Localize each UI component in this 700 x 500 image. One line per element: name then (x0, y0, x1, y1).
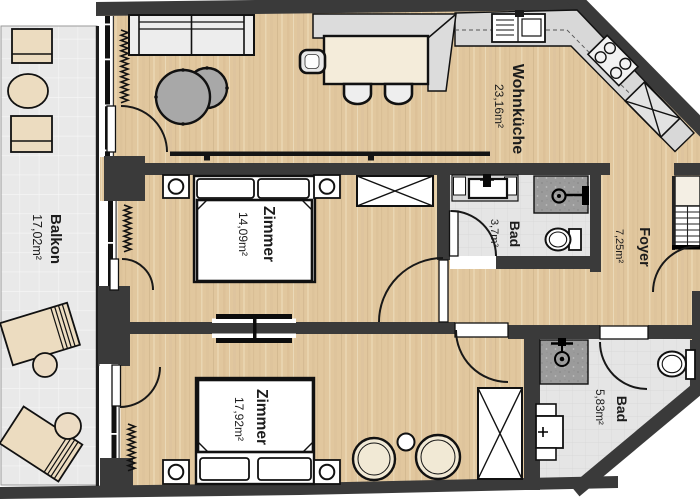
svg-text:17,92m²: 17,92m² (232, 397, 246, 441)
svg-text:Balkon: Balkon (47, 214, 64, 264)
svg-text:3,7m²: 3,7m² (488, 219, 500, 247)
svg-text:17,02m²: 17,02m² (30, 214, 44, 260)
svg-text:Zimmer: Zimmer (260, 206, 277, 262)
svg-text:Bad: Bad (507, 221, 523, 247)
svg-text:14,09m²: 14,09m² (236, 212, 250, 256)
svg-text:5,83m²: 5,83m² (593, 389, 605, 425)
svg-text:Bad: Bad (614, 396, 630, 422)
svg-text:23,16m²: 23,16m² (492, 84, 506, 128)
svg-text:Zimmer: Zimmer (253, 389, 270, 445)
svg-text:Wohnküche: Wohnküche (509, 64, 526, 154)
svg-text:7,25m²: 7,25m² (613, 229, 625, 264)
svg-text:Foyer: Foyer (636, 227, 652, 267)
